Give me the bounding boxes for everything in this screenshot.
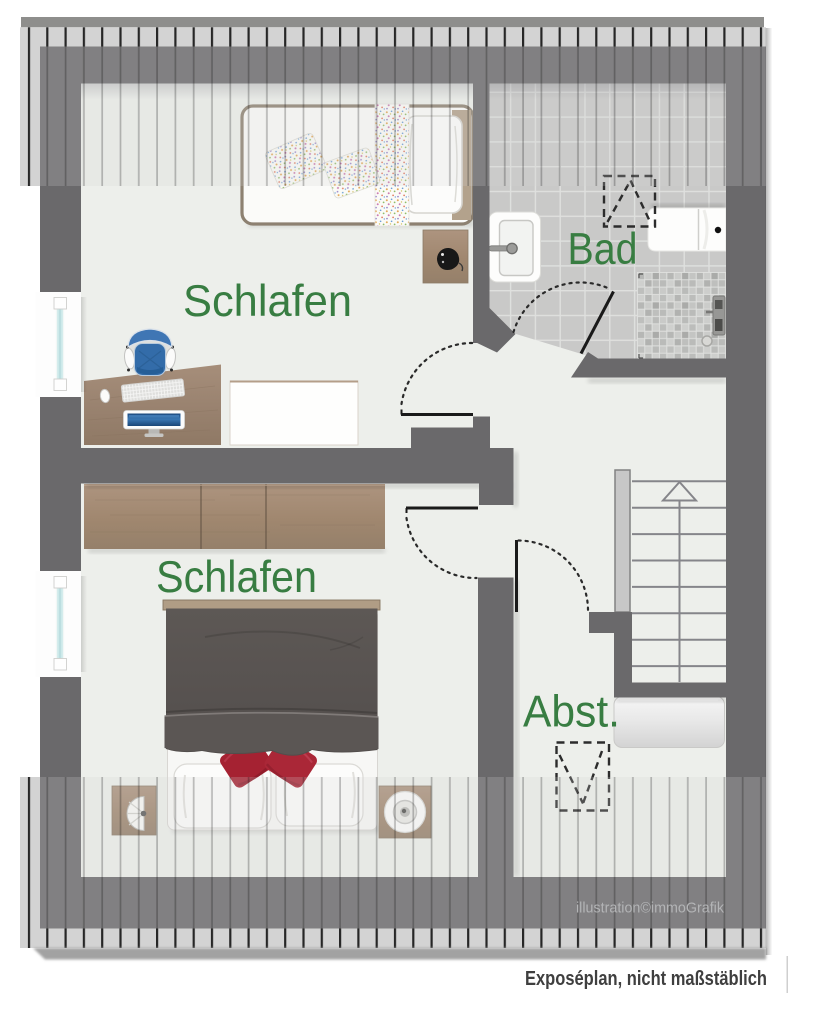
- svg-text:Schlafen: Schlafen: [156, 553, 317, 602]
- svg-text:illustration©immoGrafik: illustration©immoGrafik: [576, 900, 724, 917]
- svg-text:Bad: Bad: [568, 225, 638, 274]
- svg-text:Exposéplan, nicht maßstäblich: Exposéplan, nicht maßstäblich: [525, 967, 767, 990]
- svg-text:Schlafen: Schlafen: [183, 277, 352, 326]
- svg-text:Abst.: Abst.: [523, 688, 620, 737]
